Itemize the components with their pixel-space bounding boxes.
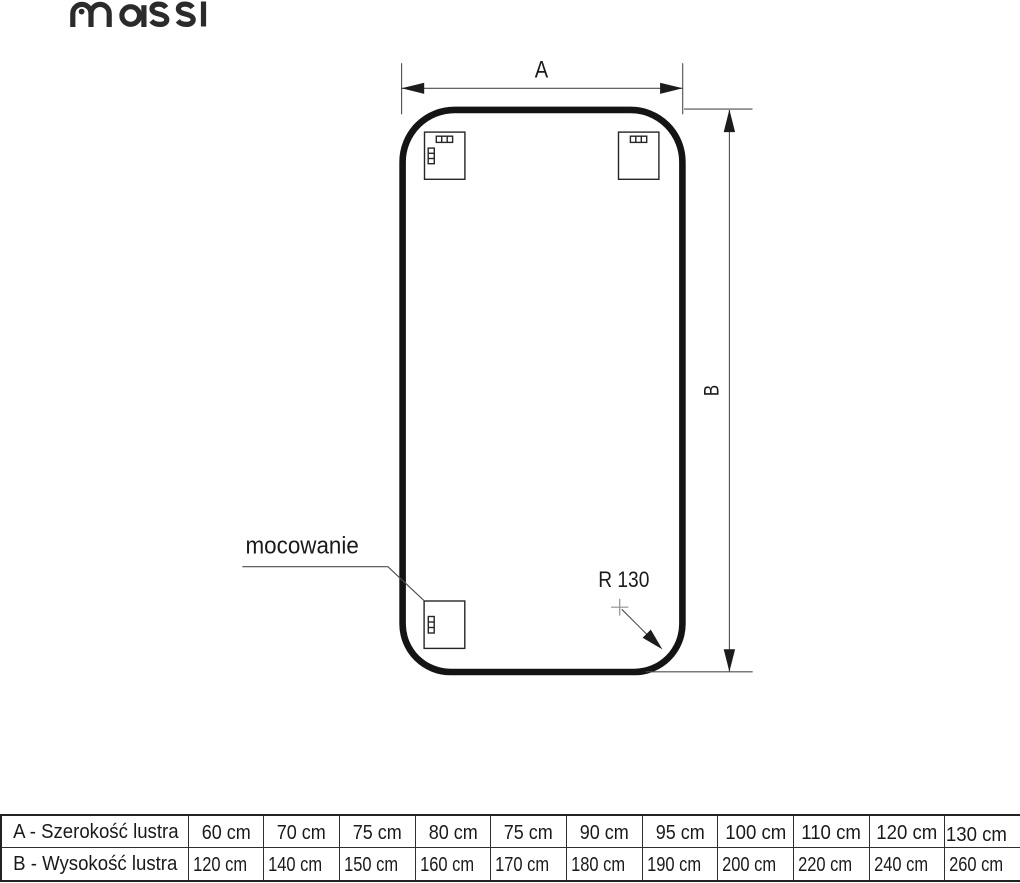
svg-text:A: A [535, 57, 548, 84]
svg-text:R 130: R 130 [598, 567, 649, 592]
svg-text:mocowanie: mocowanie [246, 532, 359, 559]
svg-text:B: B [699, 385, 723, 396]
